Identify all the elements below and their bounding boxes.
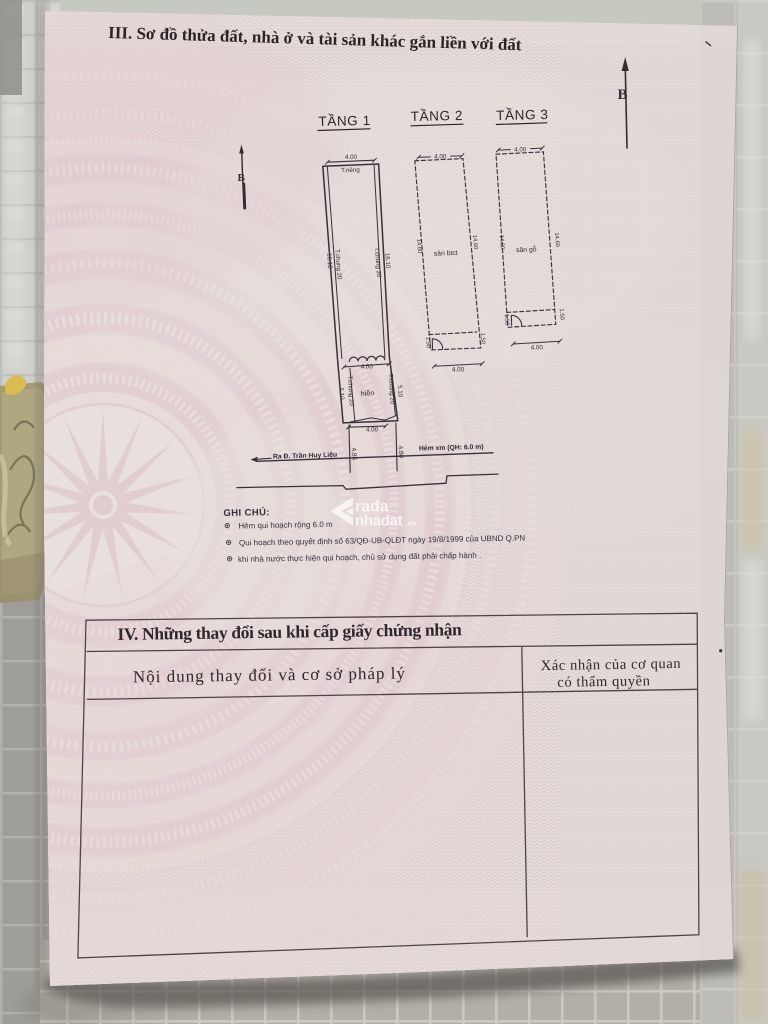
svg-text:Nội dung thay đổi và cơ sở phá: Nội dung thay đổi và cơ sở pháp lý	[133, 664, 406, 687]
svg-text:TẦNG 3: TẦNG 3	[496, 107, 549, 123]
svg-text:4.00: 4.00	[366, 427, 379, 434]
svg-text:4.00: 4.00	[531, 344, 544, 351]
svg-text:4.00: 4.00	[361, 363, 374, 370]
svg-text:14.60: 14.60	[553, 232, 560, 247]
svg-text:Xác nhận của cơ quan: Xác nhận của cơ quan	[541, 656, 682, 674]
svg-text:B: B	[618, 87, 628, 103]
svg-text:hiên: hiên	[360, 388, 374, 398]
svg-text:sân btct: sân btct	[434, 250, 458, 258]
svg-text:1.50: 1.50	[558, 308, 565, 320]
svg-text:TẦNG 2: TẦNG 2	[411, 108, 464, 124]
svg-text:có thẩm quyền: có thẩm quyền	[557, 673, 651, 690]
svg-text:TẦNG 1: TẦNG 1	[318, 113, 371, 129]
svg-text:14.60: 14.60	[498, 235, 505, 250]
svg-text:14.60: 14.60	[415, 239, 422, 254]
svg-text:1.50: 1.50	[503, 314, 510, 326]
svg-text:5.10: 5.10	[396, 385, 404, 398]
svg-text:B: B	[238, 172, 246, 184]
svg-text:16.10: 16.10	[383, 253, 391, 270]
svg-text:.vn: .vn	[406, 519, 417, 528]
svg-text:nhadat: nhadat	[355, 514, 403, 530]
svg-text:5.10: 5.10	[337, 387, 345, 400]
svg-text:4.80: 4.80	[397, 445, 405, 458]
svg-text:GHI CHÚ:: GHI CHÚ:	[223, 506, 270, 519]
svg-text:4.85: 4.85	[350, 447, 358, 460]
svg-text:1.50: 1.50	[479, 333, 486, 345]
svg-text:16.10: 16.10	[325, 253, 333, 270]
svg-text:4.00: 4.00	[345, 154, 358, 161]
svg-text:4.00: 4.00	[452, 367, 465, 374]
svg-text:14.60: 14.60	[471, 235, 478, 250]
svg-text:1.50: 1.50	[424, 337, 431, 349]
svg-text:T.riêng: T.riêng	[341, 167, 360, 175]
svg-text:Hẻm qui hoạch rộng 6.0 m: Hẻm qui hoạch rộng 6.0 m	[238, 520, 333, 531]
